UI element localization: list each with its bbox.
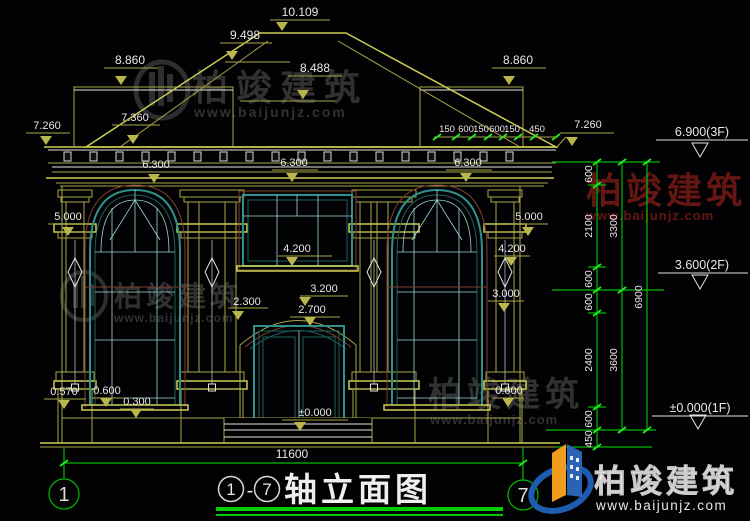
chain-dim: 2100	[583, 214, 595, 238]
title-underline-thick	[216, 507, 503, 511]
dim-cornice-left: 6.300	[142, 159, 170, 171]
chain-dim: 450	[583, 430, 595, 448]
dim-wing-right: 8.860	[503, 53, 533, 67]
dim-base-left: 0.300	[123, 396, 151, 408]
eave-dim: 150	[504, 124, 520, 135]
level-2f: 3.600(2F)	[675, 258, 729, 272]
brand-logo: 柏竣建筑 www.baijunjz.com	[525, 444, 738, 519]
dim-capital-right: 5.000	[515, 211, 543, 223]
dim-plinth-left: 0.570	[50, 386, 78, 398]
dim-hip-mid: 8.488	[300, 61, 330, 75]
chain-dim: 3600	[608, 348, 620, 372]
dim-eave-left-inner: 7.360	[121, 112, 149, 124]
dim-floor-level: ±0.000	[298, 407, 332, 419]
dim-window-head-right: 3.000	[492, 288, 520, 300]
eave-dim: 600	[458, 124, 474, 135]
chain-dim: 3300	[608, 214, 620, 238]
dim-wing-left: 8.860	[115, 53, 145, 67]
dim-sill-1f-left: 0.600	[93, 385, 121, 397]
brand-url: www.baijunjz.com	[595, 498, 727, 513]
brand-name: 柏竣建筑	[594, 463, 738, 499]
watermark-brand: 柏竣建筑	[586, 170, 746, 211]
title-underline-thin	[216, 514, 503, 516]
drawing-title: 1 - 7 轴立面图	[216, 471, 503, 516]
watermark-brand: 柏竣建筑	[114, 280, 242, 312]
chain-dim: 600	[583, 293, 595, 311]
chain-dim: 6900	[633, 285, 645, 309]
eave-dim: 600	[489, 124, 505, 135]
logo-building-orange	[552, 444, 566, 502]
elevation-marks: 10.109 9.498 8.488 8.860 8.860 7.260 7.3…	[26, 5, 614, 431]
eave-dim: 450	[529, 124, 545, 135]
dim-hip-upper: 9.498	[230, 28, 260, 42]
dim-sill-1f-right: 0.600	[495, 385, 523, 397]
wall-lamp	[367, 240, 381, 391]
dim-arch-spring: 2.300	[233, 296, 261, 308]
watermark-url: www.baijunjz.com	[113, 311, 234, 325]
watermark-url: www.baijunjz.com	[585, 208, 714, 223]
chain-dim: 600	[583, 410, 595, 428]
logo-building-blue	[567, 444, 582, 497]
chain-dim: 600	[583, 165, 595, 183]
dim-cornice-right: 6.300	[454, 157, 482, 169]
level-3f: 6.900(3F)	[675, 125, 729, 139]
cad-elevation-canvas: 柏竣建筑 www.baijunjz.com 柏竣建筑 www.baijunjz.…	[0, 0, 750, 521]
eave-detail-dims: 150 600 150 600 150 450	[433, 124, 560, 140]
dim-eave-right: 7.260	[574, 119, 602, 131]
axis-number-left: 1	[58, 484, 69, 506]
dim-arch-peak: 3.200	[310, 283, 338, 295]
title-axis-left: 1	[226, 480, 235, 499]
elevation-drawing: 柏竣建筑 www.baijunjz.com 柏竣建筑 www.baijunjz.…	[0, 0, 750, 521]
dim-sill-2f-center: 4.200	[283, 243, 311, 255]
dim-eave-left: 7.260	[33, 120, 61, 132]
chain-dim: 2400	[583, 348, 595, 372]
axis-number-right: 7	[517, 485, 528, 507]
watermark-url: www.baijunjz.com	[193, 104, 347, 120]
dim-ridge: 10.109	[282, 5, 319, 19]
dim-door-head: 2.700	[298, 304, 326, 316]
eave-dim: 150	[439, 124, 455, 135]
title-text: 轴立面图	[284, 471, 432, 508]
chain-dim: 600	[583, 270, 595, 288]
watermark-url: www.baijunjz.com	[429, 412, 558, 427]
title-dash: -	[247, 480, 254, 502]
level-1f: ±0.000(1F)	[669, 401, 730, 415]
dim-sill-2f-right: 4.200	[498, 243, 526, 255]
dim-cornice-center: 6.300	[280, 157, 308, 169]
window-center-2f	[237, 191, 358, 271]
eave-dim: 150	[473, 124, 489, 135]
overall-width-dim: 11600	[276, 447, 309, 461]
title-axis-right: 7	[262, 480, 271, 499]
dim-capital-left: 5.000	[54, 211, 82, 223]
